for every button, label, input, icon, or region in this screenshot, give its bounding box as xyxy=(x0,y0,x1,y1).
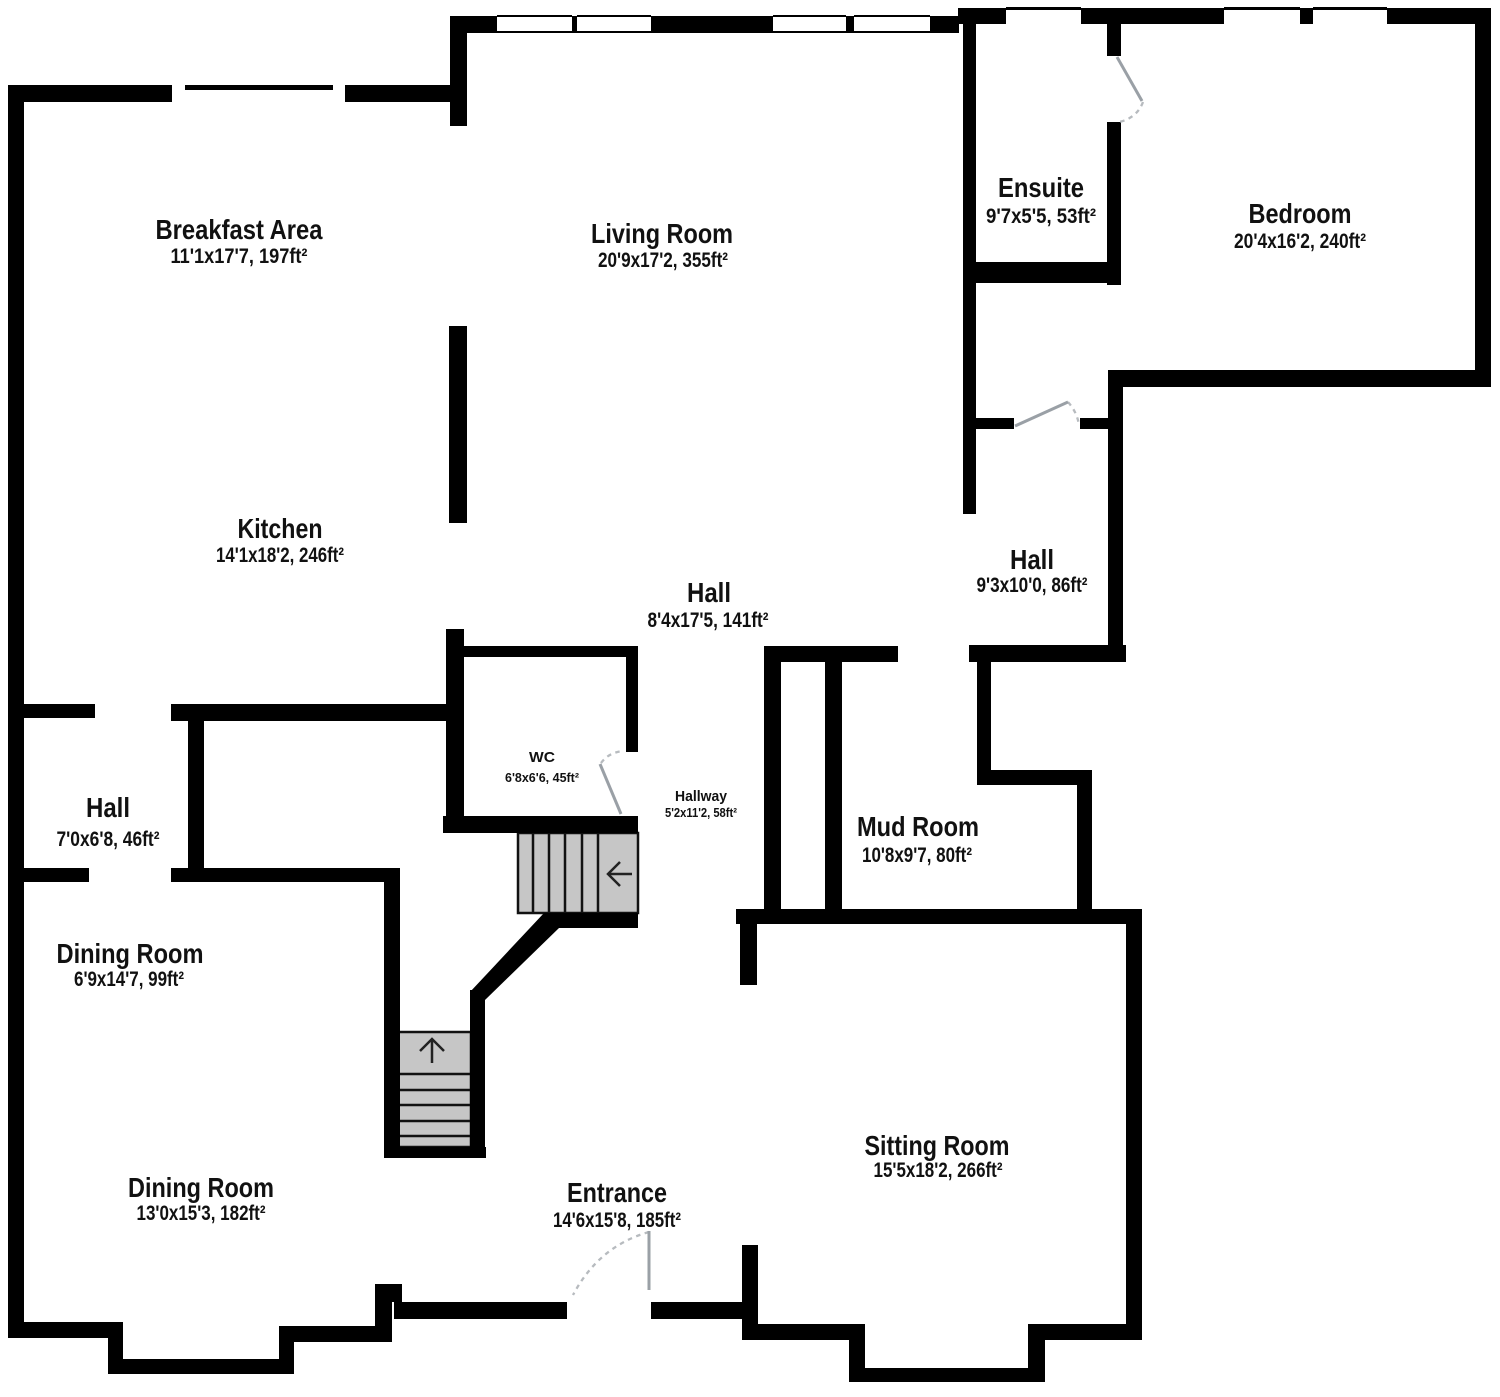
svg-text:14'6x15'8, 185ft²: 14'6x15'8, 185ft² xyxy=(553,1209,681,1232)
svg-text:6'8x6'6, 45ft²: 6'8x6'6, 45ft² xyxy=(505,770,580,785)
svg-text:15'5x18'2, 266ft²: 15'5x18'2, 266ft² xyxy=(874,1159,1003,1182)
svg-text:WC: WC xyxy=(529,749,555,766)
svg-text:Dining Room: Dining Room xyxy=(128,1172,274,1203)
svg-text:Ensuite: Ensuite xyxy=(998,172,1084,203)
svg-text:5'2x11'2, 58ft²: 5'2x11'2, 58ft² xyxy=(665,805,738,820)
svg-text:7'0x6'8, 46ft²: 7'0x6'8, 46ft² xyxy=(57,828,160,851)
svg-text:Breakfast Area: Breakfast Area xyxy=(156,214,323,245)
svg-text:Living Room: Living Room xyxy=(591,218,733,249)
svg-text:8'4x17'5, 141ft²: 8'4x17'5, 141ft² xyxy=(648,609,769,632)
svg-text:20'4x16'2, 240ft²: 20'4x16'2, 240ft² xyxy=(1234,230,1366,253)
svg-text:Mud Room: Mud Room xyxy=(857,811,979,842)
svg-text:9'3x10'0, 86ft²: 9'3x10'0, 86ft² xyxy=(977,574,1088,597)
svg-text:Bedroom: Bedroom xyxy=(1249,198,1352,229)
svg-text:11'1x17'7, 197ft²: 11'1x17'7, 197ft² xyxy=(171,245,308,268)
svg-text:20'9x17'2, 355ft²: 20'9x17'2, 355ft² xyxy=(598,249,728,272)
svg-text:Entrance: Entrance xyxy=(567,1177,667,1208)
svg-text:9'7x5'5, 53ft²: 9'7x5'5, 53ft² xyxy=(986,205,1096,228)
svg-text:Hall: Hall xyxy=(687,577,731,608)
svg-text:13'0x15'3, 182ft²: 13'0x15'3, 182ft² xyxy=(137,1202,266,1225)
svg-text:6'9x14'7, 99ft²: 6'9x14'7, 99ft² xyxy=(74,968,184,991)
svg-text:Dining Room: Dining Room xyxy=(57,938,204,969)
svg-text:Sitting Room: Sitting Room xyxy=(865,1130,1010,1161)
svg-text:Hallway: Hallway xyxy=(675,788,728,805)
svg-text:10'8x9'7, 80ft²: 10'8x9'7, 80ft² xyxy=(862,844,972,867)
svg-text:Kitchen: Kitchen xyxy=(238,513,323,544)
svg-text:14'1x18'2, 246ft²: 14'1x18'2, 246ft² xyxy=(216,544,344,567)
svg-text:Hall: Hall xyxy=(86,792,130,823)
svg-text:Hall: Hall xyxy=(1010,544,1054,575)
